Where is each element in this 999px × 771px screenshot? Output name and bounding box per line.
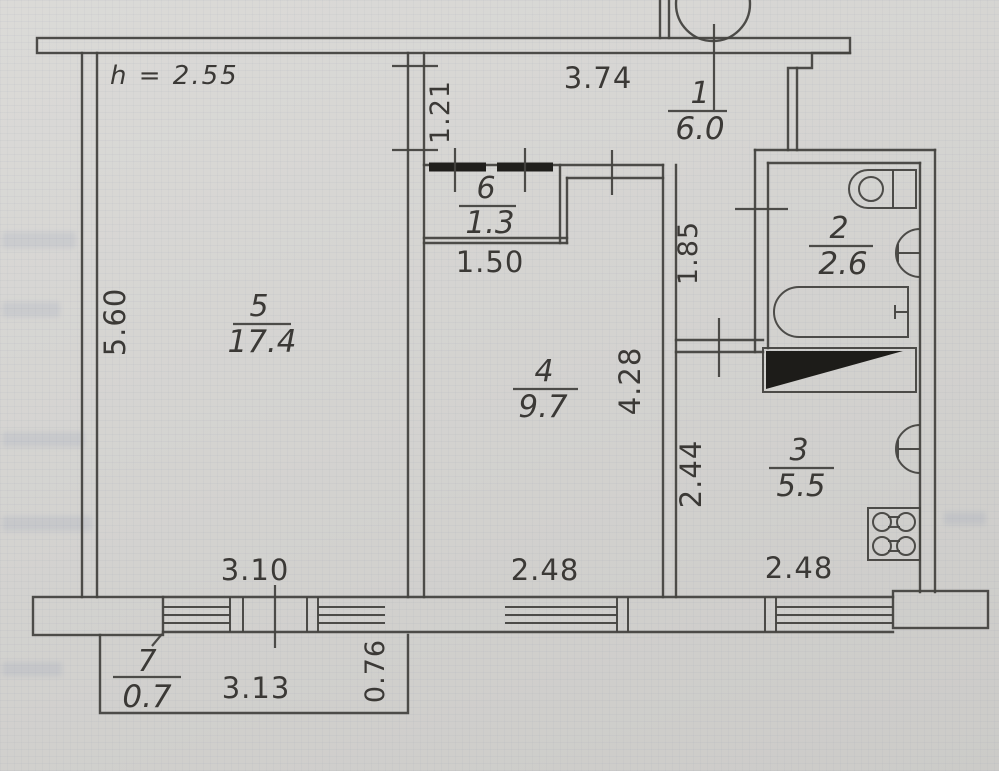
- room3-area: 5.5: [776, 468, 825, 504]
- dim-hall-width: 3.74: [564, 61, 633, 95]
- room4-window: [505, 607, 617, 623]
- room1-number: 1: [690, 76, 709, 111]
- dim-room5-window: 3.10: [221, 553, 290, 587]
- dim-room5-height: 5.60: [98, 288, 132, 357]
- room5-window-left: [163, 607, 230, 623]
- room5-window-right: [318, 607, 385, 623]
- vent-shaft: [763, 348, 916, 392]
- room4-area: 9.7: [518, 389, 568, 425]
- dim-balcony-depth: 0.76: [360, 639, 391, 703]
- dim-hall-niche: 1.21: [425, 80, 456, 144]
- room3-number: 3: [789, 433, 808, 468]
- toilet-icon: [849, 170, 916, 208]
- dim-room4-depth: 4.28: [613, 347, 647, 416]
- room5-label: 5 17.4: [227, 289, 296, 360]
- south-wall-block-right: [893, 591, 988, 628]
- stove-icon: [868, 508, 920, 560]
- room7-label: 7 0.7: [113, 634, 181, 715]
- dim-balcony-length: 3.13: [222, 671, 291, 705]
- room4-label: 4 9.7: [513, 354, 578, 425]
- room6-area: 1.3: [465, 205, 514, 241]
- room1-label: 1 6.0: [668, 76, 727, 147]
- dim-room4-window: 2.48: [511, 553, 580, 587]
- floor-plan-drawing: 5 17.4 4 9.7 6 1.3 1 6.0 2: [0, 0, 999, 771]
- dimension-labels: h = 2.55 5.60 1.21 3.74 1.50 1.85 4.28 2…: [98, 61, 833, 705]
- dim-corridor-lower: 2.44: [674, 440, 708, 509]
- bath-sink-icon: [896, 229, 920, 277]
- room6-number: 6: [476, 171, 495, 206]
- room6-label: 6 1.3: [459, 171, 516, 241]
- window-symbols: [163, 597, 893, 632]
- kitchen-window: [776, 607, 893, 623]
- south-wall-block-left: [33, 597, 163, 635]
- room7-number: 7: [137, 644, 156, 679]
- room5-number: 5: [249, 289, 268, 324]
- room4-number: 4: [534, 354, 553, 389]
- ceiling-height-note: h = 2.55: [110, 61, 239, 91]
- north-wall: [37, 38, 850, 53]
- room-labels: 5 17.4 4 9.7 6 1.3 1 6.0 2: [113, 76, 873, 715]
- floor-plan-photo: 5 17.4 4 9.7 6 1.3 1 6.0 2: [0, 0, 999, 771]
- window-mullions: [230, 597, 776, 632]
- room5-area: 17.4: [227, 324, 296, 360]
- dim-kitchen-window: 2.48: [765, 551, 834, 585]
- room2-number: 2: [829, 211, 848, 246]
- room3-label: 3 5.5: [769, 433, 834, 504]
- bathtub-icon: [774, 287, 908, 337]
- room2-label: 2 2.6: [809, 211, 873, 282]
- room7-area: 0.7: [122, 679, 172, 715]
- room1-area: 6.0: [675, 111, 724, 147]
- kitchen-sink-icon: [896, 425, 920, 473]
- dim-closet-width: 1.50: [456, 245, 525, 279]
- dim-corridor-upper: 1.85: [673, 221, 704, 285]
- room2-area: 2.6: [818, 246, 867, 282]
